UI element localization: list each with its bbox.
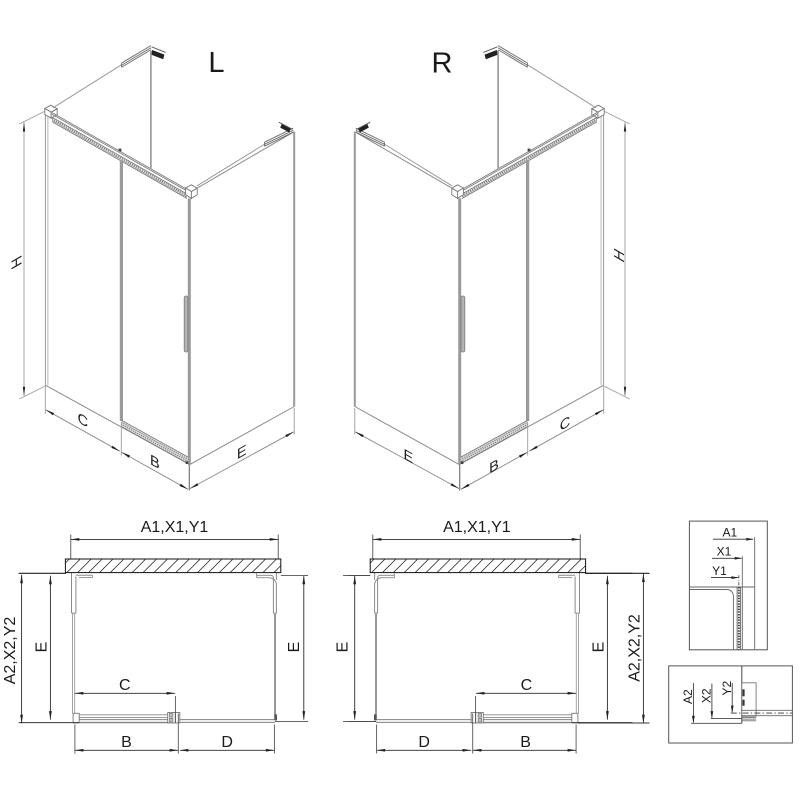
svg-text:A2: A2 [681, 689, 695, 704]
svg-text:A1,X1,Y1: A1,X1,Y1 [141, 519, 209, 536]
svg-text:B: B [520, 734, 531, 751]
svg-text:C: C [560, 413, 570, 435]
svg-text:E: E [334, 642, 351, 653]
svg-text:H: H [9, 252, 25, 272]
svg-text:A1: A1 [723, 526, 738, 540]
svg-text:E: E [591, 642, 608, 653]
svg-text:R: R [432, 48, 453, 80]
svg-text:B: B [121, 734, 132, 751]
svg-text:E: E [286, 642, 303, 653]
svg-text:L: L [208, 47, 224, 79]
svg-text:B: B [489, 456, 499, 477]
svg-text:D: D [221, 734, 233, 751]
svg-text:D: D [418, 734, 430, 751]
svg-text:E: E [34, 642, 51, 653]
svg-text:E: E [403, 446, 413, 467]
svg-text:Y2: Y2 [720, 681, 734, 696]
svg-text:C: C [119, 677, 131, 694]
svg-text:Y1: Y1 [712, 564, 727, 578]
svg-text:X2: X2 [700, 688, 714, 703]
svg-text:C: C [521, 677, 533, 694]
svg-text:E: E [237, 442, 247, 463]
svg-text:B: B [150, 452, 160, 473]
svg-text:A2,X2,Y2: A2,X2,Y2 [627, 614, 644, 682]
svg-text:A2,X2,Y2: A2,X2,Y2 [2, 617, 19, 685]
svg-text:X1: X1 [717, 545, 732, 559]
svg-text:A1,X1,Y1: A1,X1,Y1 [443, 519, 511, 536]
